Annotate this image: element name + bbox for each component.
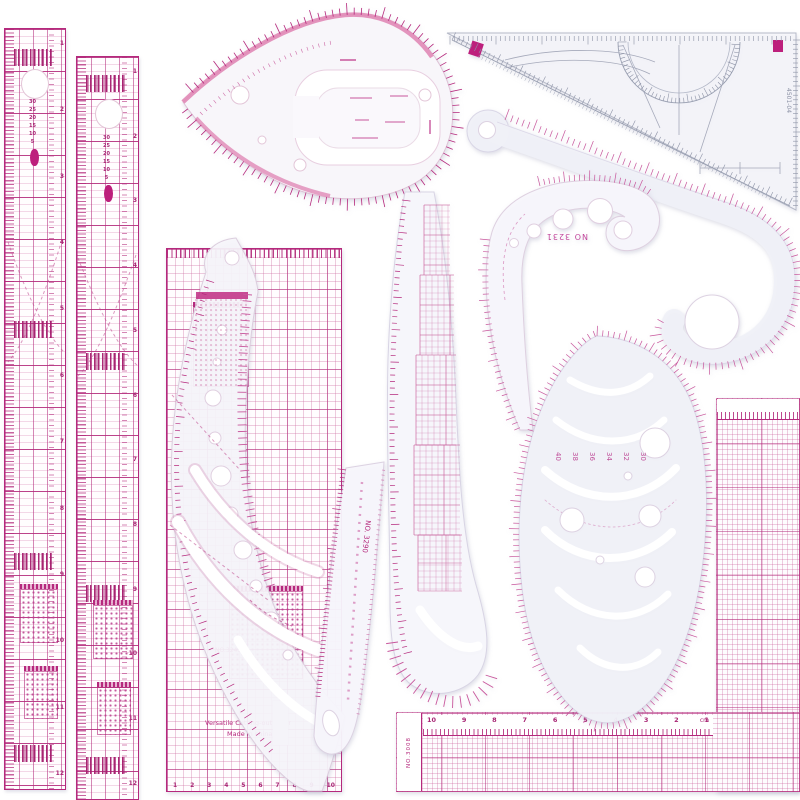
scale-number: 10 <box>29 131 36 137</box>
curve-hole <box>510 239 519 248</box>
rect-top-scale <box>167 249 341 258</box>
tick-marks <box>505 109 800 375</box>
egg-size-number: 30 <box>639 452 647 461</box>
scale-number: 5 <box>60 306 64 312</box>
l-square-horizontal-arm: NO.3008 10987654321 cm <box>396 712 800 792</box>
swan-spiral-hole <box>685 295 739 349</box>
scale-number: 30 <box>29 99 36 105</box>
egg-wave-slots <box>545 376 676 667</box>
hip-step-grid <box>424 205 450 275</box>
triangle-protractor-arc <box>618 42 740 103</box>
tick-marks <box>182 3 463 211</box>
scale-number: 12 <box>56 771 64 777</box>
scale-number: 1 <box>173 782 177 789</box>
drop-horseshoe-cutout <box>295 70 440 165</box>
swan-neck-curve <box>467 109 800 375</box>
dot-grid-block <box>193 307 249 387</box>
rect-model-number: NO.3245 <box>215 647 241 654</box>
egg-size-number: 32 <box>622 452 630 461</box>
hang-hole <box>21 69 49 99</box>
scale-number: 8 <box>60 506 64 512</box>
scale-number: 9 <box>133 587 137 593</box>
egg-size-number: 36 <box>588 452 596 461</box>
cm-scale-number: 3 <box>644 716 649 724</box>
barcode-scale-block <box>86 757 125 774</box>
teardrop-french-curve <box>182 3 463 211</box>
scale-number: 4 <box>133 263 137 269</box>
egg-size-number: 38 <box>571 452 579 461</box>
scale-number: 20 <box>29 115 36 121</box>
grading-rectangle-ruler: NO.3245 Versatile Cutting-out Ruler Made… <box>166 248 342 792</box>
scale-number: 7 <box>275 782 279 789</box>
scale-number: 8 <box>133 522 137 528</box>
dot-grid-block <box>97 687 131 735</box>
l-square-model-number: NO.3008 <box>406 737 412 768</box>
rect-bottom-numbers: 12345678910 <box>173 782 335 789</box>
tick-marks <box>478 55 771 200</box>
curve-hole <box>527 224 541 238</box>
hang-hole <box>95 99 123 129</box>
barcode-scale-block <box>14 321 52 338</box>
scale-number: 15 <box>29 123 36 129</box>
corner-badge <box>468 40 484 57</box>
barcode-scale-block <box>14 745 52 762</box>
drop-hole <box>294 159 306 171</box>
scale-number: 10 <box>103 167 110 173</box>
scale-number: 1 <box>133 69 137 75</box>
cm-scale-number: 2 <box>674 716 679 724</box>
triangle-ruler: 4501-04 <box>447 32 800 210</box>
tick-marks <box>793 40 800 206</box>
scale-number: 4 <box>60 240 64 246</box>
brand-badge <box>104 185 113 202</box>
scale-number: 10 <box>327 782 335 789</box>
scale-number: 15 <box>103 159 110 165</box>
scale-number: 12 <box>129 781 137 787</box>
drop-hole <box>419 89 431 101</box>
scale-number: 5 <box>133 328 137 334</box>
egg-size-number: 34 <box>605 452 613 461</box>
spine-scale-numbers: 30252015105 <box>29 99 36 145</box>
cm-scale-number: 7 <box>523 716 528 724</box>
scale-number: 2 <box>60 107 64 113</box>
dot-grid-block <box>20 589 58 643</box>
french-curve-3231: NO 3231 <box>478 170 659 430</box>
cm-scale-number: 10 <box>427 716 436 724</box>
scale-number: 3 <box>207 782 211 789</box>
stick-model-number: NO. 3290 <box>361 520 372 553</box>
scale-number: 5 <box>241 782 245 789</box>
drop-center-markings <box>340 60 430 138</box>
curve-hook-hole <box>614 221 632 239</box>
cm-scale-number: 5 <box>583 716 588 724</box>
cm-unit-label: cm <box>700 717 709 724</box>
drop-pink-rim <box>183 15 432 102</box>
scale-number: 9 <box>60 572 64 578</box>
scale-number: 7 <box>133 457 137 463</box>
ruler-number-column: 123456789101112 <box>129 69 137 787</box>
tick-marks <box>200 41 331 115</box>
drop-pink-rim <box>196 118 330 196</box>
scale-number: 8 <box>292 782 296 789</box>
tick-marks <box>618 42 740 103</box>
tick-marks <box>509 326 717 732</box>
tick-marks <box>357 470 385 714</box>
scale-number: 25 <box>103 143 110 149</box>
triangle-construction-lines <box>505 45 780 174</box>
product-photo-sewing-ruler-set: 123456789101112 30252015105 123456789101… <box>0 0 800 800</box>
curve-model-number: NO 3231 <box>546 232 588 241</box>
ruler-edge-ticks <box>77 57 86 799</box>
cm-scale-number: 8 <box>492 716 497 724</box>
tick-marks <box>538 170 651 194</box>
drop-hole <box>231 86 249 104</box>
ruler-edge-ticks <box>5 29 14 789</box>
brand-badge <box>30 149 39 166</box>
straight-grading-ruler-2: 123456789101112 30252015105 <box>76 56 139 800</box>
barcode-scale-block <box>86 75 125 92</box>
scale-number: 4 <box>224 782 228 789</box>
hip-curve-ruler <box>386 192 497 708</box>
curve-hole <box>553 209 573 229</box>
scale-number: 6 <box>258 782 262 789</box>
tick-marks <box>452 32 792 205</box>
dot-grid-block <box>93 605 133 659</box>
scale-number: 3 <box>133 198 137 204</box>
scale-number: 6 <box>133 393 137 399</box>
scale-number: 25 <box>29 107 36 113</box>
egg-size-numbers: 403836343230 <box>554 452 647 461</box>
triangle-model-code: 4501-04 <box>785 88 792 113</box>
scale-number: 2 <box>133 134 137 140</box>
slot-cutout <box>273 701 288 745</box>
dot-grid-block <box>24 671 58 719</box>
cm-scale-number: 6 <box>553 716 558 724</box>
tick-marks <box>386 642 497 708</box>
scale-number: 2 <box>190 782 194 789</box>
scale-number: 20 <box>103 151 110 157</box>
corner-badge <box>773 40 783 52</box>
barcode-scale-block <box>14 49 52 66</box>
egg-size-number: 40 <box>554 452 562 461</box>
made-in-china-label: Made in china <box>227 730 272 738</box>
scale-number: 3 <box>60 174 64 180</box>
swan-hang-hole <box>479 122 496 139</box>
scale-number: 6 <box>60 373 64 379</box>
tick-marks <box>390 200 412 654</box>
spine-scale-numbers: 30252015105 <box>103 135 110 181</box>
egg-holes <box>560 428 670 587</box>
barcode-scale-block <box>14 553 52 570</box>
cm-scale-number: 4 <box>613 716 618 724</box>
cm-scale-number: 9 <box>462 716 467 724</box>
curve-hole <box>588 199 613 224</box>
straight-grading-ruler-1: 123456789101112 30252015105 <box>4 28 66 790</box>
l-square-top-cap <box>717 399 799 420</box>
dot-grid-block <box>229 591 303 679</box>
scale-number: 30 <box>103 135 110 141</box>
scale-number: 9 <box>310 782 314 789</box>
scale-number: 1 <box>60 41 64 47</box>
l-square-end-cap: NO.3008 <box>397 713 422 791</box>
drop-hole <box>258 136 266 144</box>
egg-multicurve-template: 403836343230 <box>509 326 717 732</box>
scale-number: 5 <box>105 175 108 181</box>
l-square-cm-scale: 10987654321 <box>423 715 713 736</box>
scale-number: 5 <box>31 139 34 145</box>
barcode-scale-block <box>86 353 125 370</box>
tick-marks <box>450 36 790 45</box>
scale-number: 7 <box>60 439 64 445</box>
tick-marks <box>478 239 520 430</box>
